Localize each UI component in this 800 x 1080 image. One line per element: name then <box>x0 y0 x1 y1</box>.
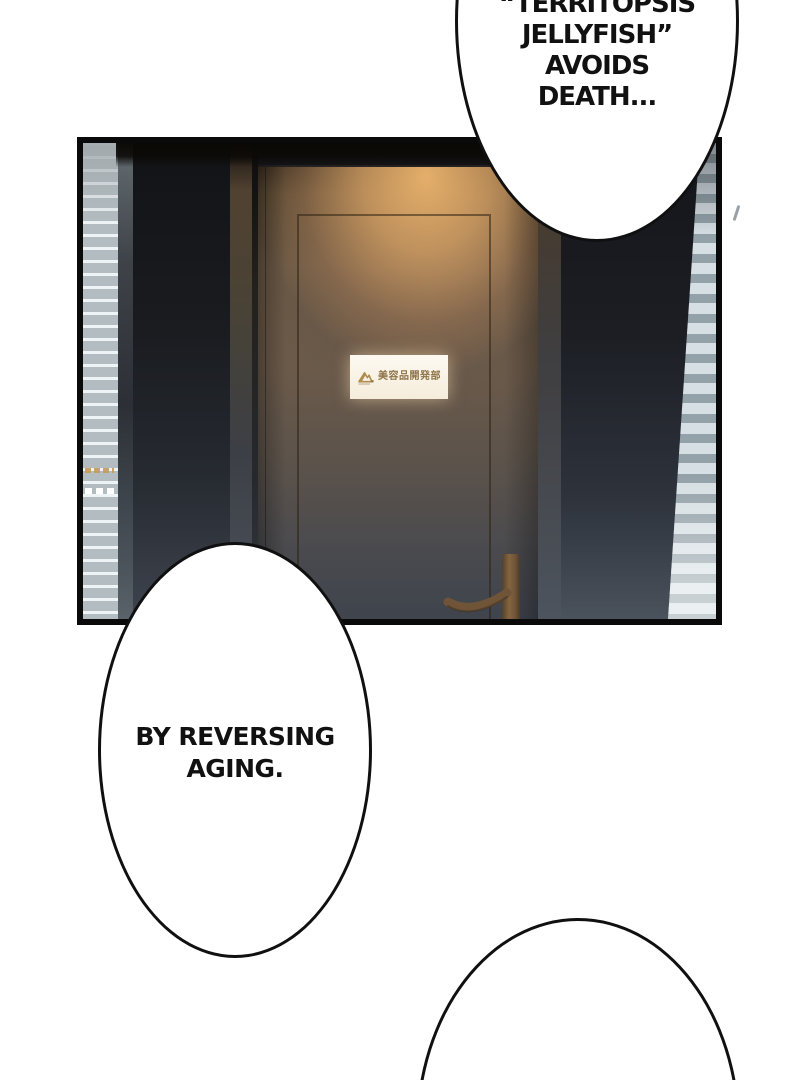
speech-bubble-middle: BY REVERSING AGING. <box>98 542 372 958</box>
speech-bubble-top-text: “TERRITOPSIS JELLYFISH” AVOIDS DEATH... <box>458 0 736 113</box>
speech-line: AVOIDS <box>458 51 736 82</box>
blinds-white-reflection <box>85 488 116 494</box>
door-sign: 美容品開発部 <box>350 355 448 399</box>
stray-ink-mark <box>733 205 741 221</box>
speech-line: AGING. <box>101 753 369 785</box>
speech-line: JELLYFISH” <box>458 20 736 51</box>
window-blinds-left <box>83 143 118 619</box>
wall-strip-left <box>118 143 133 619</box>
speech-line: “TERRITOPSIS <box>458 0 736 20</box>
blinds-gold-reflection <box>85 468 114 473</box>
door-handle-lever <box>443 585 513 615</box>
speech-bubble-bottom <box>416 918 740 1080</box>
speech-bubble-middle-text: BY REVERSING AGING. <box>101 721 369 785</box>
door-inset-panel <box>297 214 491 619</box>
company-logo-icon <box>357 370 374 385</box>
speech-line: BY REVERSING <box>101 721 369 753</box>
door-sign-text: 美容品開発部 <box>378 372 441 382</box>
comic-page: 美容品開発部 “TERRITOPSIS JELLYFISH” AVOIDS DE… <box>0 0 800 1080</box>
office-door: 美容品開発部 <box>258 165 538 619</box>
speech-line: DEATH... <box>458 82 736 113</box>
